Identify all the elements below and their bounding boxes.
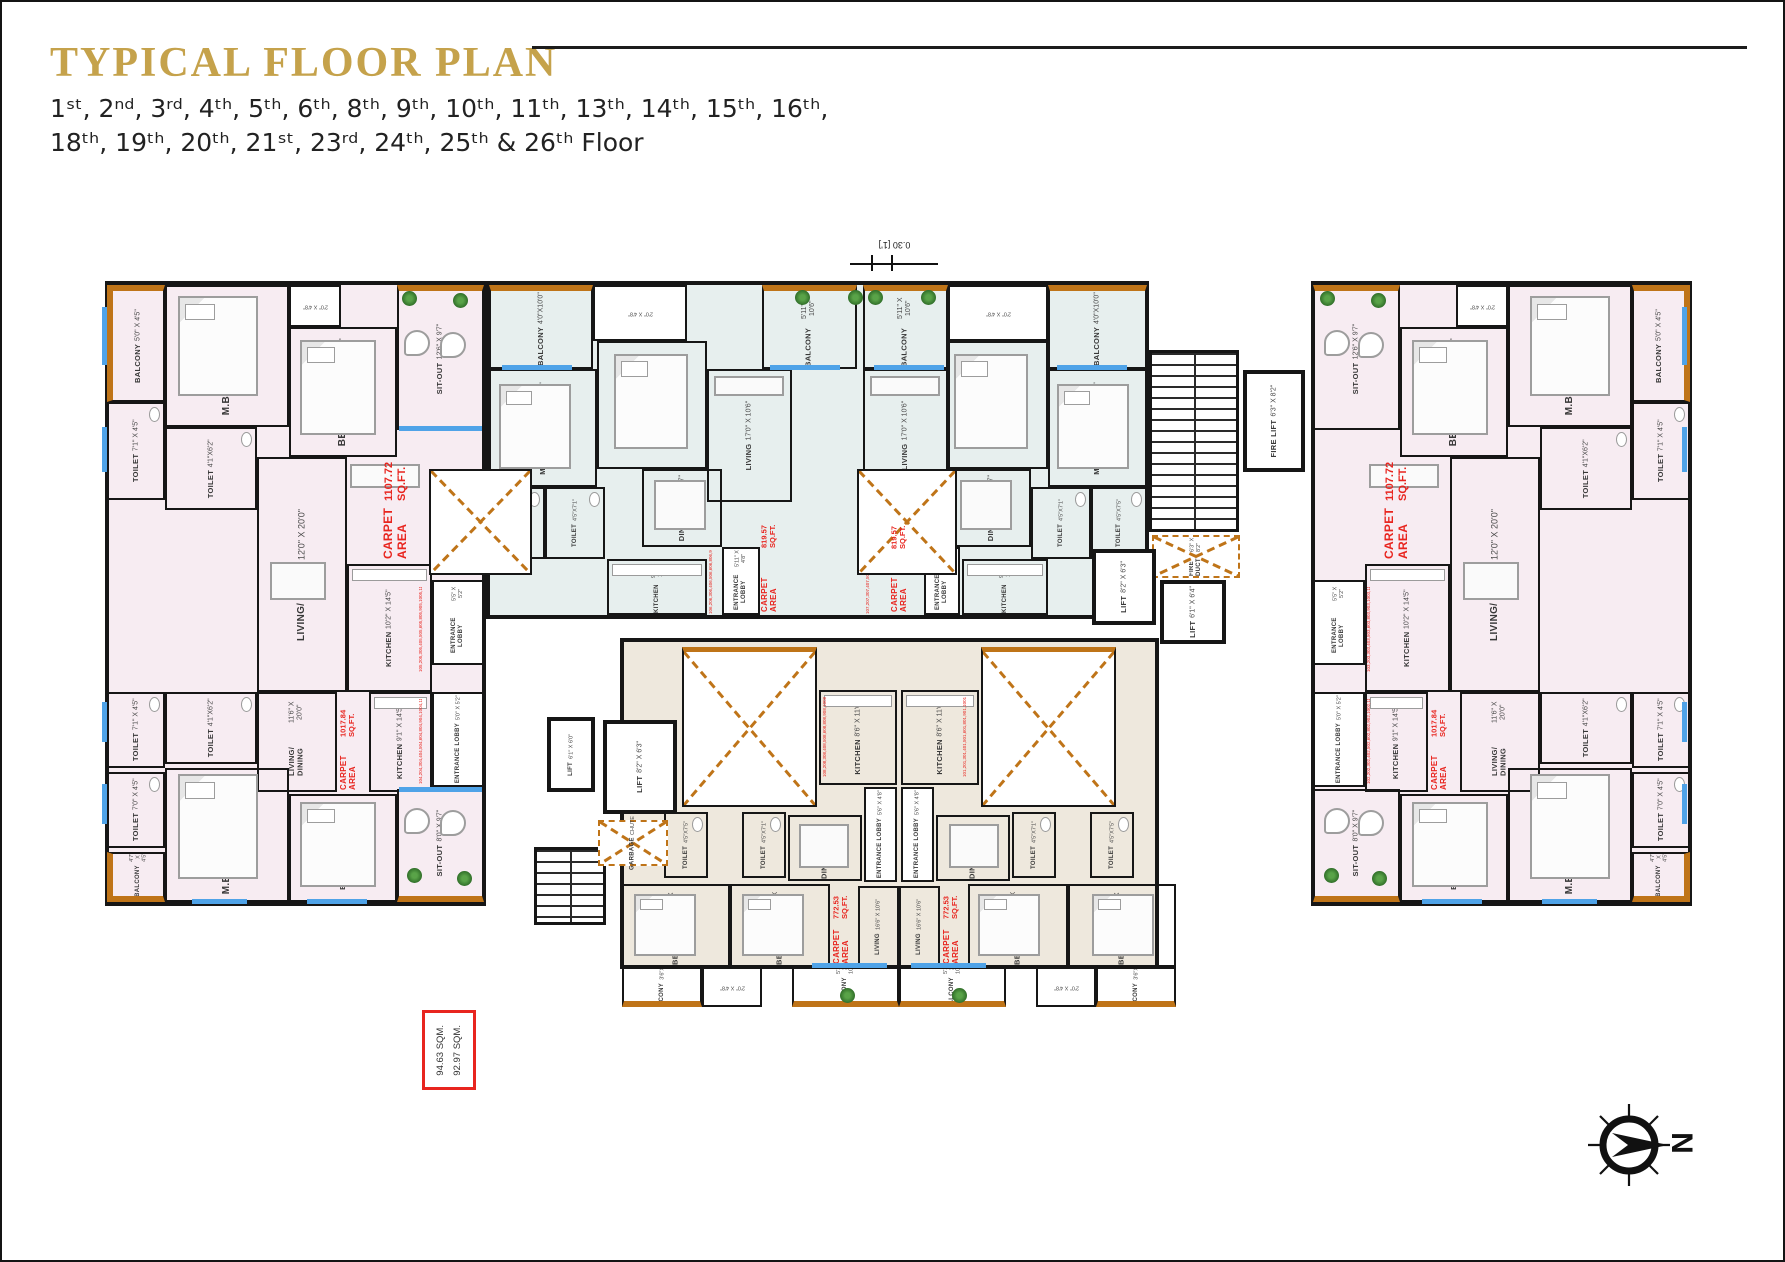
room-dims: 9'0" X 11'0" xyxy=(651,561,664,581)
room-dims: 12'0" X 20'0" xyxy=(1490,509,1500,560)
room-dims: 12'0" X 20'0" xyxy=(297,509,307,560)
plant-icon xyxy=(407,868,422,883)
room-balcony: BALCONY4'0"X10'0" xyxy=(489,285,593,369)
room-dims: 17'0" X 10'6" xyxy=(745,401,753,441)
room-dims: 2'0" X 4'8" xyxy=(1054,984,1079,990)
window xyxy=(911,963,986,968)
chair-furniture xyxy=(1358,332,1384,358)
room-label: BALCONY xyxy=(901,328,910,367)
room-entrance-lobby: ENTRANCE LOBBY5'5" X 5'2" xyxy=(1313,580,1365,665)
staircase xyxy=(534,847,606,925)
window xyxy=(812,963,887,968)
room-dims: 3'6"X10'0" xyxy=(659,967,665,980)
bed-furniture xyxy=(954,354,1028,449)
plant-icon xyxy=(1372,871,1387,886)
room-balcony: BALCONY5'0" X 4'5" xyxy=(107,285,165,402)
window xyxy=(399,426,482,431)
floors-line-2: 18ᵗʰ, 19ᵗʰ, 20ᵗʰ, 21ˢᵗ, 23ʳᵈ, 24ᵗʰ, 25ᵗʰ… xyxy=(50,126,828,160)
room-label: TOILET xyxy=(1116,524,1123,547)
window xyxy=(874,365,944,370)
room-label: BALCONY xyxy=(805,328,814,367)
plant-icon xyxy=(1320,291,1335,306)
duct-notch: 2'0" X 4'8" xyxy=(702,967,762,1007)
carpet-area-label: CARPET AREA772.53 SQ.FT. xyxy=(832,886,856,964)
room-entrance-lobby: ENTRANCE LOBBY5'6" X 4'8" xyxy=(901,787,934,882)
room-dims: 10'2" X 14'5" xyxy=(385,589,393,629)
chair-furniture xyxy=(404,808,430,834)
flat-numbers: 104,204,304,404,504,604,804,904,1004,110… xyxy=(418,699,432,784)
room-dims: 8'2" X 6'3" xyxy=(636,741,644,773)
room-label: LIFT xyxy=(1120,596,1129,613)
bed-furniture xyxy=(499,384,571,469)
legend-area-2: 92.97 SQM. xyxy=(452,1025,463,1076)
bed-furniture xyxy=(1092,894,1154,956)
room-balcony: BALCONY3'6"X10'0" xyxy=(1096,967,1176,1007)
room-label: BALCONY xyxy=(1655,343,1664,382)
room-entrance-lobby: ENTRANCE LOBBY5'0" X 5'2" xyxy=(1313,692,1365,787)
carpet-line1: CARPET AREA xyxy=(760,551,778,612)
room-label: TOILET xyxy=(132,454,141,482)
plant-icon xyxy=(453,293,468,308)
room-toilet: TOILET7'1" X 4'5" xyxy=(107,692,165,768)
room-label: KITCHEN xyxy=(936,739,945,774)
sofa-furniture xyxy=(714,376,784,396)
room-label: BALCONY xyxy=(134,343,143,382)
window xyxy=(102,427,107,472)
room-label: LIVING/ DINING xyxy=(1491,734,1508,790)
plant-icon xyxy=(457,871,472,886)
carpet-area-label: CARPET AREA819.57 SQ.FT. xyxy=(890,502,922,612)
duct-notch: 2'0" X 4'8" xyxy=(289,285,341,327)
room-dims: CHUTE xyxy=(630,816,636,835)
carpet-line2: 819.57 SQ.FT. xyxy=(891,502,908,549)
window xyxy=(307,899,367,904)
room-label: TOILET xyxy=(207,470,216,498)
room-label: ENTRANCE LOBBY xyxy=(734,571,748,613)
room-label: KITCHEN xyxy=(854,739,863,774)
room-dims: 7'1" X 4'5" xyxy=(1657,698,1665,730)
room-toilet: TOILET4'1"X6'2" xyxy=(1540,427,1632,510)
flat-numbers: 106,206,306,406,506,606,806,906,1006,110… xyxy=(708,550,721,614)
window xyxy=(399,787,482,792)
room-label: BALCONY xyxy=(659,983,666,1007)
room-dims: 5'5" X 5'2" xyxy=(1333,582,1346,605)
room-label: BALCONY xyxy=(1093,327,1102,366)
carpet-line2: 772.53 SQ.FT. xyxy=(833,886,850,919)
room-label: ENTRANCE LOBBY xyxy=(877,818,884,878)
window xyxy=(102,307,107,365)
room-dims: 4'5"X7'5" xyxy=(683,821,689,843)
room-label: ENTRANCE LOBBY xyxy=(451,608,465,663)
room-dims: 10'2" X 14'5" xyxy=(1403,589,1411,629)
room-balcony: BALCONY4'7" X 4'5" xyxy=(1632,852,1690,902)
room-label: LIFT xyxy=(636,776,645,793)
room-label: LIVING/ DINING xyxy=(288,734,305,790)
room-toilet: TOILET7'1" X 4'5" xyxy=(107,402,165,500)
room-dims: 4'7" X 4'5" xyxy=(129,853,148,862)
staircase xyxy=(1149,350,1239,532)
carpet-line2: 1107.72 SQ.FT. xyxy=(1384,454,1409,501)
room-dims: 5'11" X 10'6" xyxy=(897,291,913,325)
room-label: TOILET xyxy=(572,524,579,547)
duct-notch: 2'0" X 4'8" xyxy=(1036,967,1096,1007)
bed-furniture xyxy=(614,354,688,449)
room-dims: 4'0"X10'0" xyxy=(1093,292,1101,324)
room-dims: 2'0" X 4'8" xyxy=(986,310,1011,316)
sofa-furniture xyxy=(870,376,940,396)
bed-furniture xyxy=(1412,802,1488,887)
duct-notch: 2'0" X 4'8" xyxy=(948,285,1048,341)
room-living: LIVING16'6" X 10'6" xyxy=(899,886,940,967)
room-sit-out: SIT-OUT12'6" X 9'7" xyxy=(1313,285,1400,430)
room-dims: 5'0" X 4'5" xyxy=(134,309,142,341)
room-dims: 4'5"X7'5" xyxy=(1109,821,1115,843)
compass-north-label: N xyxy=(1664,1132,1698,1154)
room-dims: 7'0" X 4'5" xyxy=(1657,778,1665,810)
flat-numbers: 108,208,308,408,508,608,808,908,1008,110… xyxy=(822,697,836,777)
room-sit-out: SIT-OUT12'6" X 9'7" xyxy=(397,285,484,430)
window xyxy=(102,784,107,824)
light-well xyxy=(429,469,532,575)
room-balcony: BALCONY4'7" X 4'5" xyxy=(107,852,165,902)
room-dims: 5'11" X 10'6" xyxy=(943,967,962,974)
room-entrance-lobby: ENTRANCE LOBBY5'6" X 4'8" xyxy=(864,787,897,882)
room-label: LIFT xyxy=(1189,621,1198,638)
plant-icon xyxy=(848,290,863,305)
room-label: TOILET xyxy=(132,813,141,841)
legend-box: 94.63 SQM. 92.97 SQM. xyxy=(422,1010,476,1090)
room-label: TOILET xyxy=(761,846,768,869)
room-dims: 16'6" X 10'6" xyxy=(916,899,922,930)
chair-furniture xyxy=(1324,808,1350,834)
room-dims: 4'5"X7'1" xyxy=(572,499,578,521)
room-dims: 7'1" X 4'5" xyxy=(132,698,140,730)
room-toilet: TOILET4'5"X7'5" xyxy=(1090,812,1134,878)
room-label: ENTRANCE LOBBY xyxy=(914,818,921,878)
room-toilet: TOILET4'5"X7'5" xyxy=(664,812,708,878)
room-label: FIRE LIFT xyxy=(1270,420,1279,458)
carpet-line1: CARPET AREA xyxy=(382,504,410,559)
window xyxy=(1682,307,1687,365)
room-label: BALCONY xyxy=(135,865,142,897)
carpet-area-label: CARPET AREA1107.72 SQ.FT. xyxy=(382,454,414,559)
chair-furniture xyxy=(1324,330,1350,356)
bed-furniture xyxy=(300,802,376,887)
table-furniture xyxy=(799,824,849,868)
light-well xyxy=(981,647,1116,807)
room-dims: 9'0" X 11'0" xyxy=(999,561,1012,581)
garbage-chute: GARBAGECHUTE xyxy=(598,820,668,866)
plant-icon xyxy=(952,988,967,1003)
room-label: ENTRANCE LOBBY xyxy=(1336,723,1343,783)
dimension-note: 0.30 [1'] xyxy=(847,240,942,250)
room-label: SIT-OUT xyxy=(1352,363,1361,395)
flat-numbers: 102,202,302,402,502,602,802,902,1002,110… xyxy=(1366,699,1380,784)
room-toilet: TOILET4'1"X6'2" xyxy=(1540,692,1632,764)
room-balcony: BALCONY5'11" X 10'6" xyxy=(899,967,1006,1007)
compass-icon xyxy=(1584,1100,1674,1190)
room-dims: 2'0" X 4'8" xyxy=(1470,303,1495,309)
room-dims: 6'1" X 6'4" xyxy=(1189,586,1197,618)
bed-furniture xyxy=(1530,296,1610,396)
title-rule xyxy=(532,46,1747,49)
carpet-area-label: CARPET AREA772.53 SQ.FT. xyxy=(942,886,966,964)
legend-area-1: 94.63 SQM. xyxy=(435,1025,446,1076)
plant-icon xyxy=(1371,293,1386,308)
room-dims: 5'0" X 4'5" xyxy=(1655,309,1663,341)
duct-notch: 2'0" X 4'8" xyxy=(1456,285,1508,327)
table-furniture xyxy=(960,480,1012,530)
room-label: TOILET xyxy=(683,846,690,869)
room-dims: 3'6"X10'0" xyxy=(1133,967,1139,980)
room-label: TOILET xyxy=(1582,729,1591,757)
bed-furniture xyxy=(634,894,696,956)
carpet-area-label: CARPET AREA819.57 SQ.FT. xyxy=(760,500,792,612)
chair-furniture xyxy=(440,332,466,358)
room-fire-lift: FIRE LIFT6'3" X 8'2" xyxy=(1243,370,1305,472)
room-dims: 5'11" X 4'8" xyxy=(735,549,748,568)
room-label: LIFT xyxy=(568,762,575,776)
room-label: LIVING xyxy=(745,443,754,470)
carpet-line1: CARPET AREA xyxy=(832,922,850,964)
window xyxy=(1057,365,1127,370)
room-label: BALCONY xyxy=(1656,865,1663,897)
room-dims: 4'7" X 4'5" xyxy=(1650,853,1669,862)
room-label: TOILET xyxy=(1058,524,1065,547)
window xyxy=(1682,427,1687,472)
room-kitchen: KITCHEN9'0" X 11'0" xyxy=(607,559,707,615)
room-dims: 4'1"X6'2" xyxy=(207,698,215,726)
carpet-line2: 1107.72 SQ.FT. xyxy=(383,454,408,501)
room-dims: 5'6" X 4'8" xyxy=(914,790,920,815)
bed-furniture xyxy=(300,340,376,435)
room-label: TOILET xyxy=(1031,846,1038,869)
room-kitchen: KITCHEN9'0" X 11'0" xyxy=(962,559,1048,615)
room-label: TOILET xyxy=(207,729,216,757)
room-label: TOILET xyxy=(1657,813,1666,841)
carpet-line2: 819.57 SQ.FT. xyxy=(761,500,778,548)
room-dims: 8'6" X 11'0" xyxy=(936,701,944,736)
room-dims: 9'1" X 14'5" xyxy=(1392,705,1400,741)
carpet-line2: 1017.84 SQ.FT. xyxy=(340,694,357,737)
room-label: KITCHEN xyxy=(1002,584,1009,613)
room-dims: 4'1"X6'2" xyxy=(207,439,215,467)
room-dims: 11'6" X 20'0" xyxy=(1492,694,1508,731)
room-dims: 4'1"X6'2" xyxy=(1582,698,1590,726)
dimension-tick xyxy=(891,255,893,271)
table-furniture xyxy=(949,824,999,868)
room-toilet: TOILET4'1"X6'2" xyxy=(165,692,257,764)
plant-icon xyxy=(868,290,883,305)
room-entrance-lobby: ENTRANCE LOBBY5'5" X 5'2" xyxy=(432,580,484,665)
room-label: KITCHEN xyxy=(385,632,394,667)
table-furniture xyxy=(1463,562,1519,600)
room-dims: 7'1" X 4'5" xyxy=(132,419,140,451)
room-dims: 4'5"X7'1" xyxy=(761,821,767,843)
room-label: TOILET xyxy=(1582,470,1591,498)
floors-list: 1ˢᵗ, 2ⁿᵈ, 3ʳᵈ, 4ᵗʰ, 5ᵗʰ, 6ᵗʰ, 8ᵗʰ, 9ᵗʰ, … xyxy=(50,92,828,160)
plant-icon xyxy=(921,290,936,305)
room-label: GARBAGE xyxy=(630,838,637,871)
window xyxy=(1682,784,1687,824)
room-dims: 7'0" X 4'5" xyxy=(132,778,140,810)
bed-furniture xyxy=(178,774,258,879)
carpet-line2: 772.53 SQ.FT. xyxy=(943,886,960,919)
room-dims: 5'5" X 5'2" xyxy=(452,582,465,605)
plant-icon xyxy=(402,291,417,306)
bed-furniture xyxy=(742,894,804,956)
window xyxy=(1682,702,1687,742)
duct-notch: 2'0" X 4'8" xyxy=(593,285,687,341)
room-dims: 4'5"X7'5" xyxy=(1116,499,1122,521)
table-furniture xyxy=(654,480,706,530)
carpet-line1: CARPET AREA xyxy=(339,740,357,790)
room-toilet: TOILET4'1"X6'2" xyxy=(165,427,257,510)
carpet-area-label: CARPET AREA1017.84 SQ.FT. xyxy=(1430,694,1458,790)
room-dims: 4'5"X7'1" xyxy=(1031,821,1037,843)
room-dims: 5'0" X 5'2" xyxy=(1336,695,1342,720)
light-well xyxy=(682,647,817,807)
room-balcony: BALCONY3'6"X10'0" xyxy=(622,967,702,1007)
room-dims: 8'6" X 11'0" xyxy=(854,701,862,736)
chair-furniture xyxy=(404,330,430,356)
room-label: SIT-OUT xyxy=(436,363,445,395)
dimension-tick xyxy=(871,255,873,271)
room-label: TOILET xyxy=(1109,846,1116,869)
fire-duct: FIRE DUCT6'3" X 8'2" xyxy=(1152,535,1240,578)
window xyxy=(192,899,247,904)
room-dims: 9'1" X 14'5" xyxy=(396,705,404,741)
room-label: LIVING xyxy=(901,443,910,470)
room-balcony: BALCONY4'0"X10'0" xyxy=(1048,285,1147,369)
plant-icon xyxy=(1324,868,1339,883)
window xyxy=(1422,899,1482,904)
room-entrance-lobby: ENTRANCE LOBBY5'11" X 4'8" xyxy=(722,547,760,615)
page-title: TYPICAL FLOOR PLAN xyxy=(50,42,557,84)
room-label: ENTRANCE LOBBY xyxy=(1332,608,1346,663)
room-lift: LIFT6'1" X 6'0" xyxy=(547,717,595,792)
room-toilet: TOILET7'0" X 4'5" xyxy=(107,772,165,848)
room-dims: 5'0" X 5'2" xyxy=(455,695,461,720)
room-lift: LIFT8'2" X 6'3" xyxy=(603,720,677,814)
room-label: LIVING xyxy=(916,933,923,955)
floors-line-1: 1ˢᵗ, 2ⁿᵈ, 3ʳᵈ, 4ᵗʰ, 5ᵗʰ, 6ᵗʰ, 8ᵗʰ, 9ᵗʰ, … xyxy=(50,92,828,126)
flat-numbers: 101,201,301,401,501,601,801,901,1001,110… xyxy=(962,697,976,777)
bed-furniture xyxy=(1057,384,1129,469)
room-dims: 2'0" X 4'8" xyxy=(628,310,653,316)
room-toilet: TOILET4'5"X7'1" xyxy=(1031,487,1091,559)
room-dims: 11'6" X 20'0" xyxy=(289,694,305,731)
room-toilet: TOILET4'5"X7'1" xyxy=(545,487,605,559)
room-lift: LIFT8'2" X 6'3" xyxy=(1092,549,1156,625)
carpet-line1: CARPET AREA xyxy=(1430,740,1448,790)
room-sit-out: SIT-OUT8'0" X 9'7" xyxy=(397,789,484,902)
room-lift: LIFT6'1" X 6'4" xyxy=(1160,580,1226,644)
room-dims: 2'0" X 4'8" xyxy=(720,984,745,990)
room-label: BALCONY xyxy=(537,327,546,366)
plant-icon xyxy=(840,988,855,1003)
carpet-line1: CARPET AREA xyxy=(890,552,908,612)
room-label: SIT-OUT xyxy=(1352,845,1361,877)
window xyxy=(502,365,572,370)
room-toilet: TOILET4'5"X7'1" xyxy=(742,812,786,878)
bed-furniture xyxy=(178,296,258,396)
room-label: KITCHEN xyxy=(1403,632,1412,667)
room-label: TOILET xyxy=(1657,454,1666,482)
window xyxy=(770,365,840,370)
room-dims: 4'5"X7'1" xyxy=(1058,499,1064,521)
window xyxy=(102,702,107,742)
room-label: KITCHEN xyxy=(654,584,661,613)
carpet-line1: CARPET AREA xyxy=(942,922,960,964)
floor-plan-page: { "header": { "title": "TYPICAL FLOOR PL… xyxy=(0,0,1785,1262)
room-label: ENTRANCE LOBBY xyxy=(935,571,949,613)
room-dims: 5'6" X 4'8" xyxy=(877,790,883,815)
flat-numbers: 103,203,303,403,503,603,803,903,1003,110… xyxy=(1366,587,1380,672)
room-sit-out: SIT-OUT8'0" X 9'7" xyxy=(1313,789,1400,902)
carpet-area-label: CARPET AREA1017.84 SQ.FT. xyxy=(339,694,367,790)
room-dims: 17'0" X 10'6" xyxy=(901,401,909,441)
room-label: TOILET xyxy=(132,733,141,761)
room-dims: 2'0" X 4'8" xyxy=(303,303,328,309)
bed-furniture xyxy=(978,894,1040,956)
room-dims: 7'1" X 4'5" xyxy=(1657,419,1665,451)
room-label: TOILET xyxy=(1657,733,1666,761)
room-dims: 4'1"X6'2" xyxy=(1582,439,1590,467)
table-furniture xyxy=(270,562,326,600)
room-dims: 16'6" X 10'6" xyxy=(875,899,881,930)
room-dims: 6'1" X 6'0" xyxy=(568,734,574,759)
room-label: FIRE DUCT xyxy=(1189,555,1203,576)
carpet-line2: 1017.84 SQ.FT. xyxy=(1431,694,1448,737)
carpet-area-label: CARPET AREA1107.72 SQ.FT. xyxy=(1383,454,1415,559)
bed-furniture xyxy=(1412,340,1488,435)
room-living: LIVING16'6" X 10'6" xyxy=(858,886,899,967)
flat-numbers: 105,205,305,405,505,605,805,905,1005,110… xyxy=(418,587,432,672)
room-label: SIT-OUT xyxy=(436,845,445,877)
room-label: KITCHEN xyxy=(1392,744,1401,779)
room-dims: 8'2" X 6'3" xyxy=(1120,561,1128,593)
room-label: ENTRANCE LOBBY xyxy=(455,723,462,783)
room-dims: 4'0"X10'0" xyxy=(537,292,545,324)
plant-icon xyxy=(795,290,810,305)
room-label: KITCHEN xyxy=(396,744,405,779)
room-entrance-lobby: ENTRANCE LOBBY5'0" X 5'2" xyxy=(432,692,484,787)
room-toilet: TOILET4'5"X7'1" xyxy=(1012,812,1056,878)
room-dims: 6'3" X 8'2" xyxy=(1270,385,1278,417)
room-label: LIVING xyxy=(875,933,882,955)
room-dims: 5'11" X 10'6" xyxy=(836,967,855,974)
room-label: BALCONY xyxy=(1133,983,1140,1007)
chair-furniture xyxy=(1358,810,1384,836)
carpet-line1: CARPET AREA xyxy=(1383,504,1411,559)
chair-furniture xyxy=(440,810,466,836)
room-dims: 6'3" X 8'2" xyxy=(1190,537,1203,552)
bed-furniture xyxy=(1530,774,1610,879)
window xyxy=(1542,899,1597,904)
dimension-line xyxy=(850,263,938,265)
